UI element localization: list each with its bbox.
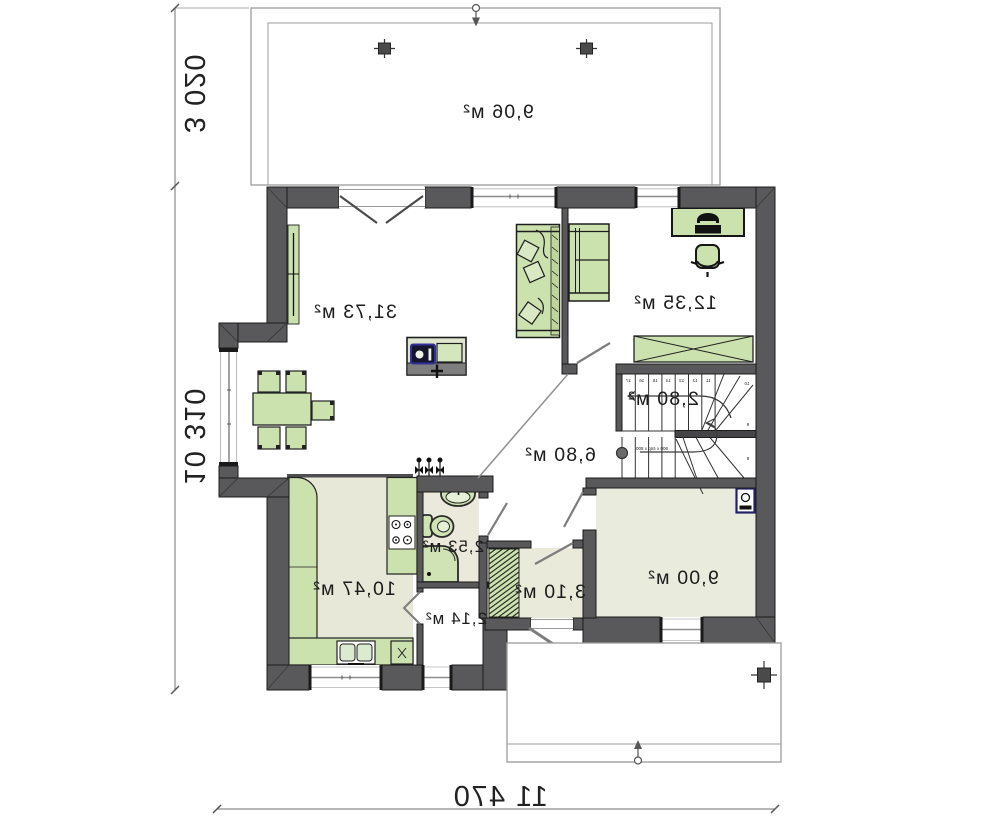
svg-text:12,35 м²: 12,35 м² [633,292,717,314]
svg-text:10: 10 [744,381,750,386]
svg-text:16: 16 [639,378,645,383]
svg-text:31,73 м²: 31,73 м² [313,301,397,323]
svg-text:6,80 м²: 6,80 м² [524,444,596,466]
svg-text:9,00 м²: 9,00 м² [647,567,719,589]
svg-text:9,06 м²: 9,06 м² [462,101,534,123]
svg-text:12: 12 [692,378,698,383]
svg-text:900 х 4пр х 800: 900 х 4пр х 800 [636,446,668,451]
svg-text:15: 15 [652,378,658,383]
svg-text:10,47 м²: 10,47 м² [312,578,396,600]
svg-text:10 310: 10 310 [178,387,210,485]
svg-text:3 020: 3 020 [178,53,210,133]
svg-text:11: 11 [705,378,710,383]
svg-text:2,53 м²: 2,53 м² [422,537,484,556]
svg-text:2,14 м²: 2,14 м² [425,609,487,628]
svg-text:14: 14 [665,378,671,383]
svg-text:2,80 м²: 2,80 м² [627,388,699,410]
svg-text:13: 13 [679,378,685,383]
svg-text:17: 17 [626,378,632,383]
svg-text:3,10 м²: 3,10 м² [514,581,586,603]
svg-text:11 470: 11 470 [452,781,548,813]
